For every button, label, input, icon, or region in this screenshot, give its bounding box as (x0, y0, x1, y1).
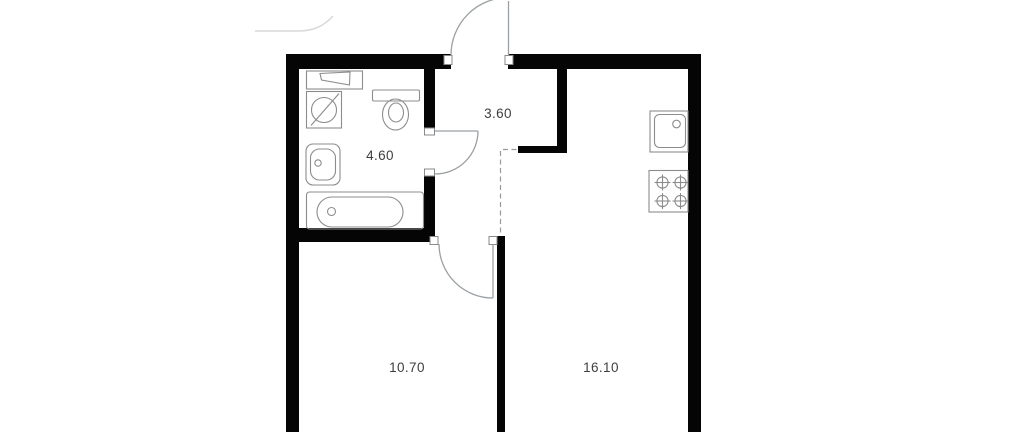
shelf-outline (307, 71, 363, 89)
entrance-door (451, 0, 509, 55)
kitchen-sink-icon (650, 111, 688, 152)
bathroom-door-arc (435, 131, 478, 174)
wall-top-left (286, 54, 451, 69)
stove-burner (655, 193, 671, 209)
jamb-bathroom-bottom (425, 169, 435, 176)
neighbor-door-arc (255, 16, 333, 31)
wall-top-right (508, 54, 701, 69)
jamb-bathroom-top (425, 128, 435, 135)
toilet-bowl-inner (389, 103, 404, 122)
toilet-icon (373, 90, 420, 130)
bedroom-door (439, 244, 493, 298)
shelf-icon (307, 71, 363, 89)
stove-burner (673, 175, 689, 191)
shelf-inner (320, 72, 350, 85)
toilet-bowl (383, 99, 409, 130)
washbasin-icon (306, 144, 340, 185)
bathtub-drain (328, 208, 336, 216)
stove-icon (649, 171, 689, 213)
door-jambs (425, 56, 514, 245)
jamb-bedroom-right (489, 237, 497, 245)
wall-right (688, 54, 701, 432)
room-area-label-bedroom: 10.70 (372, 360, 442, 376)
entrance-door-arc (451, 0, 509, 55)
wall-bathroom-bottom (299, 228, 430, 242)
wall-between-rooms (497, 236, 505, 432)
zone-boundary (501, 150, 519, 237)
kitchen-sink-drain (673, 120, 681, 128)
jamb-entrance-right (505, 56, 513, 65)
washbasin-inner (311, 149, 336, 180)
floor-plan-drawing (0, 0, 1024, 432)
room-area-label-kitchen-living: 16.10 (566, 360, 636, 376)
washing-machine-slash (311, 94, 339, 126)
jamb-bedroom-left (430, 237, 438, 245)
washbasin-outline (306, 144, 340, 185)
wall-bathroom-right-upper (424, 69, 435, 128)
kitchen-sink-basin (655, 115, 686, 148)
stove-burner (655, 175, 671, 191)
bedroom-door-arc (439, 244, 493, 298)
kitchen-fixtures (649, 111, 689, 212)
bathtub-inner (317, 197, 403, 227)
bathtub-icon (307, 192, 424, 229)
wall-kitchen-stub (518, 146, 567, 153)
room-area-label-hallway: 3.60 (463, 106, 533, 122)
floor-plan-canvas: 4.60 3.60 10.70 16.10 (0, 0, 1024, 432)
washing-machine-icon (307, 92, 342, 129)
wall-kitchen-vertical (557, 69, 567, 153)
room-area-label-bathroom: 4.60 (345, 148, 415, 164)
wall-left (286, 54, 299, 432)
stove-burner (673, 193, 689, 209)
bathroom-door (435, 131, 478, 174)
jamb-entrance-left (444, 56, 452, 65)
washbasin-drain (315, 160, 321, 166)
